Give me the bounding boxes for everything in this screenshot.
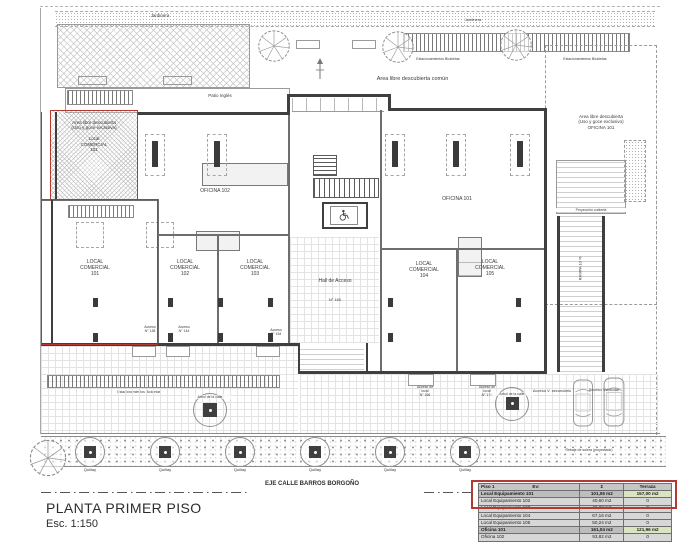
entrance-steps — [300, 346, 364, 370]
quillay-label: Quillay — [301, 468, 329, 473]
table-row: Local Equipamiento 104 67,16 m2 0 — [479, 512, 672, 519]
ramp-wall — [602, 216, 605, 372]
column-marker — [392, 141, 398, 167]
row-name: Local Equipamiento 104 — [479, 512, 580, 519]
room-label-local-102: LOCALCOMERCIAL102 — [157, 259, 213, 277]
red-boundary-left — [41, 112, 42, 199]
access-vehicular-label: Acceso Vehicular — [577, 388, 631, 393]
quillay-tree-icon — [309, 446, 321, 458]
access-label-144: AccesoN° 144 — [170, 325, 198, 333]
row-terraza: 0 — [624, 512, 672, 519]
ramp-wall — [557, 216, 560, 372]
street-tree-icon — [203, 403, 217, 417]
column-marker — [214, 141, 220, 167]
wheelchair-icon — [338, 207, 350, 223]
quillay-label: Quillay — [376, 468, 404, 473]
wall — [380, 110, 382, 373]
car-icon — [601, 376, 627, 428]
column-marker — [218, 333, 223, 342]
column-marker — [388, 298, 393, 307]
quillay-tree-icon — [234, 446, 246, 458]
quillay-label: Quillay — [151, 468, 179, 473]
wall — [288, 114, 290, 345]
bike-parking-bottom — [47, 375, 280, 388]
core-rooms — [292, 98, 384, 112]
wall — [298, 371, 546, 374]
red-highlight-table — [471, 480, 677, 509]
access-notch — [166, 346, 190, 357]
patio-ingles-grate — [67, 90, 133, 105]
hall-number: N° 160 — [329, 297, 341, 302]
planter-box-2 — [163, 76, 192, 85]
column-marker — [388, 333, 393, 342]
terrace-dotted-strip — [624, 140, 646, 202]
oficina-101-label: OFICINA 101 — [425, 196, 489, 202]
common-open-area-label: Area libre descubierta común — [340, 76, 485, 83]
row-area: 93,82 m2 — [580, 534, 624, 541]
bike-parking-top-label-1: Estacionamientos Bicicletas — [408, 57, 468, 61]
room-104-l3: 104 — [420, 273, 428, 279]
ramp-label: RAMPA 10 % — [579, 238, 584, 298]
terrace-oficina-line1: Area libre descubierta — [579, 114, 623, 119]
column-marker — [268, 298, 273, 307]
quillay-tree-icon — [384, 446, 396, 458]
column-marker — [516, 333, 521, 342]
stair-flight-main — [313, 178, 379, 198]
jardinera-label-left: Jardinera — [135, 13, 185, 18]
stair-flight-upper — [313, 155, 337, 176]
quillay-tree-icon — [84, 446, 96, 458]
floor-plan-sheet: { "title": { "main": "PLANTA PRIMER PISO… — [0, 0, 680, 555]
table-row: Oficina 101 161,04 m2 121,96 m2 — [479, 527, 672, 534]
street-centerline — [41, 492, 249, 493]
red-highlight-terrace-local-101 — [50, 110, 138, 200]
access-notch — [256, 346, 280, 357]
row-terraza: 0 — [624, 519, 672, 526]
wall — [381, 248, 545, 250]
covered-projection — [556, 160, 626, 214]
drawing-title: PLANTA PRIMER PISO — [46, 500, 202, 516]
a144-l2: N° 144 — [179, 329, 190, 333]
row-area: 50,24 m2 — [580, 519, 624, 526]
room-103-l3: 103 — [251, 271, 259, 277]
wall — [544, 108, 547, 374]
curb-line — [41, 433, 660, 434]
row-name: Oficina 101 — [479, 527, 580, 534]
room-label-local-104: LOCALCOMERCIAL104 — [396, 261, 452, 279]
table-row: Oficina 102 93,82 m2 0 — [479, 534, 672, 541]
wall — [287, 94, 290, 114]
row-area: 67,16 m2 — [580, 512, 624, 519]
street-axis-label: EJE CALLE BARROS BORGOÑO — [250, 481, 374, 487]
hall-name: Hall de Acceso — [318, 278, 351, 284]
tree-icon — [379, 28, 417, 66]
quillay-label: Quillay — [451, 468, 479, 473]
tree-icon — [497, 26, 535, 64]
jardinera-label-right: Jardinera — [450, 18, 496, 23]
hall-label: Hall de AccesoN° 160 — [298, 268, 372, 306]
quillay-tree-icon — [159, 446, 171, 458]
patio-ingles-label: Patio Inglés — [180, 93, 260, 98]
column-marker — [152, 141, 158, 167]
row-name: Oficina 102 — [479, 534, 580, 541]
wall — [287, 94, 391, 97]
tree-icon — [26, 436, 70, 480]
terrace-oficina-line2: (Uso y goce exclusivo) — [578, 119, 623, 124]
drawing-scale: Esc. 1:150 — [46, 518, 98, 530]
tree-icon — [255, 27, 293, 65]
terrace-oficina-label: Area libre descubierta(Uso y goce exclus… — [547, 114, 655, 130]
bench — [352, 40, 376, 49]
wall — [298, 343, 300, 373]
wall — [217, 235, 219, 345]
table-row: Local Equipamiento 105 50,24 m2 0 — [479, 519, 672, 526]
wall — [157, 234, 289, 236]
terrace-oficina-line3: OFICINA 101 — [588, 125, 615, 130]
access-notch — [132, 346, 156, 357]
wall — [137, 112, 290, 115]
column-marker — [168, 333, 173, 342]
sidewalk-grid-left — [41, 346, 298, 433]
column-marker — [218, 298, 223, 307]
quillay-label: Quillay — [76, 468, 104, 473]
street-tree-icon — [506, 397, 519, 410]
access-label-166: Acceso delocalN° 166 — [411, 385, 439, 398]
bench — [296, 40, 320, 49]
red-highlight-local-101 — [41, 199, 158, 345]
wall — [456, 248, 458, 373]
room-label-local-105: LOCALCOMERCIAL105 — [462, 259, 518, 277]
street-centerline — [424, 492, 472, 493]
solera-note: Rebaje de solera (proyectado) — [560, 448, 618, 452]
row-terraza: 0 — [624, 534, 672, 541]
covered-projection-label: Proyección cubierta — [552, 208, 630, 212]
site-boundary-top — [40, 6, 660, 7]
wall — [366, 343, 368, 373]
street-tree-label: Arbol de la calle — [189, 395, 231, 399]
wall — [388, 108, 546, 111]
room-label-local-103: LOCALCOMERCIAL103 — [227, 259, 283, 277]
row-area: 161,04 m2 — [580, 527, 624, 534]
access-label-154: AccesoN° 154 — [262, 328, 290, 336]
quillay-label: Quillay — [226, 468, 254, 473]
room-105-l3: 105 — [486, 271, 494, 277]
column-marker — [453, 141, 459, 167]
row-name: Local Equipamiento 105 — [479, 519, 580, 526]
column-marker — [168, 298, 173, 307]
row-terraza: 121,96 m2 — [624, 527, 672, 534]
a154-l2: N° 154 — [271, 332, 282, 336]
column-marker — [516, 298, 521, 307]
a166-l3: N° 166 — [420, 393, 431, 397]
street-tree-label: Arbol de la calle — [490, 392, 534, 396]
column-marker — [517, 141, 523, 167]
planter-box-1 — [78, 76, 107, 85]
oficina-102-label: OFICINA 102 — [183, 188, 247, 194]
quillay-tree-icon — [459, 446, 471, 458]
north-arrow-icon — [314, 58, 326, 80]
car-icon — [571, 378, 595, 428]
room-102-l3: 102 — [181, 271, 189, 277]
